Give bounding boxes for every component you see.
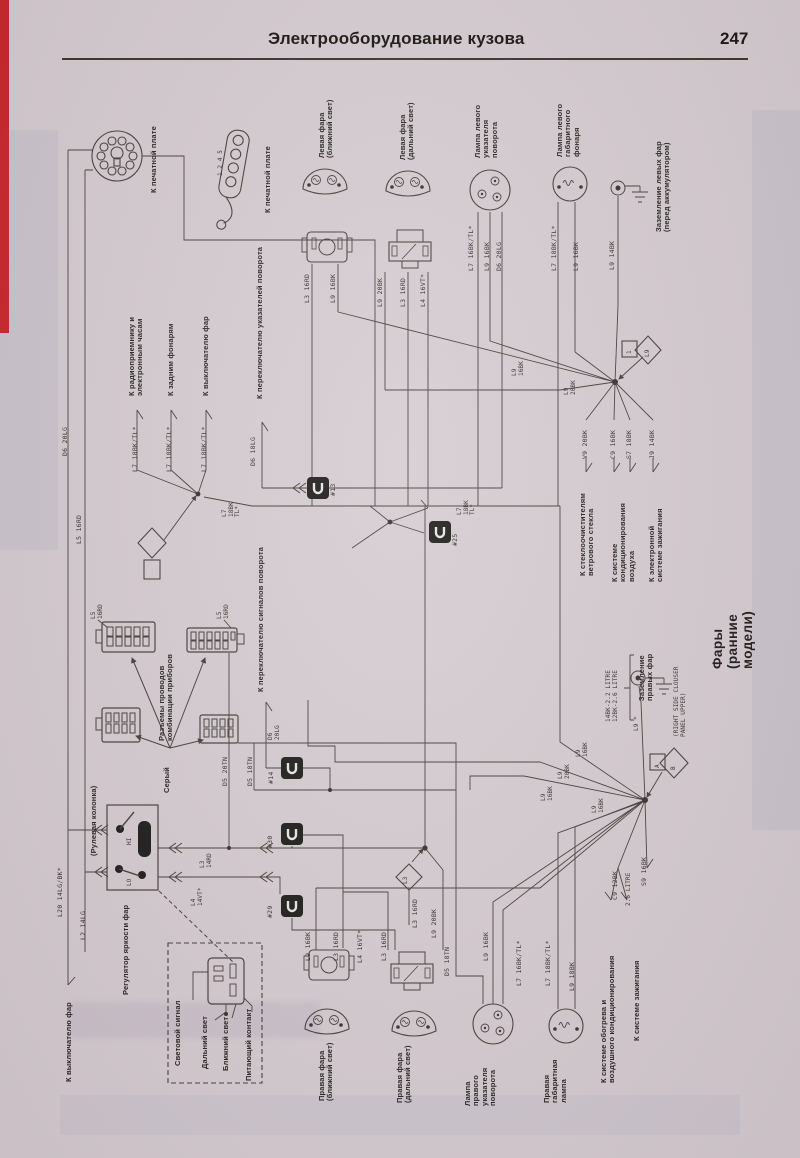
component-label: К системе обогрева и воздушного кондицио… — [600, 956, 617, 1083]
marker-lamp-left-icon — [553, 167, 587, 201]
wire-label: L3 16RD — [333, 932, 340, 961]
component-label: Правая габаритная лампа — [543, 1059, 568, 1103]
junction-star — [612, 379, 618, 385]
wire-label: L4 16VT* — [357, 930, 364, 963]
wire-label: L9 18BK — [569, 962, 576, 991]
headlamp-low-left-icon — [303, 169, 347, 194]
junction-marks — [95, 379, 648, 1016]
wire-label: L5 16RD — [91, 604, 104, 619]
connector-29-icon — [281, 895, 303, 917]
pcb-connector-round-icon — [92, 131, 142, 181]
wire-label: LO — [127, 879, 134, 886]
junction-dot — [227, 846, 231, 850]
wire-label: 2.6 LITRE — [626, 873, 633, 906]
wire-label: L7 18BK/TL* — [545, 940, 552, 986]
diagram-title: Фары (ранние модели) — [710, 579, 755, 669]
wire-label: L9 20BK — [564, 380, 577, 395]
high-beam-connector-left-icon — [389, 230, 431, 268]
connector-id-label: #30 — [267, 836, 274, 849]
wire-label: L9 20BK — [377, 278, 384, 307]
wire-label: L9 16BK — [576, 742, 589, 757]
wire-label: L3 16RD — [412, 899, 419, 928]
wire-label: J9 14BK — [649, 430, 656, 459]
junction-dot — [196, 492, 201, 497]
component-label: Правая фара (ближний свет) — [318, 1043, 335, 1102]
marker-lamp-right-icon — [549, 1009, 583, 1043]
component-label: (Рулевая колонка) — [90, 786, 98, 856]
wire-label: L7 16BK/TL* — [516, 940, 523, 986]
component-label: Правая фара (дальний свет) — [396, 1045, 413, 1103]
wire-label: C9 16BK — [610, 430, 617, 459]
wire-label: L7 18BK/TL* — [166, 426, 173, 472]
splice-id-label: A — [655, 764, 662, 768]
wire-label: L9 16BK — [512, 361, 525, 376]
wire-label: L7 18BK/TL* — [551, 225, 558, 271]
wire-label: L7 18BK TL* — [222, 502, 242, 517]
connector-25-icon — [429, 521, 451, 543]
component-label: Питающий контакт — [245, 1009, 253, 1081]
wire-label: D6 20LG — [496, 242, 503, 271]
component-label: К стеклоочистителям ветрового стекла — [579, 493, 596, 576]
splice-id-label: L9 — [645, 350, 652, 357]
wire-label: D5 18TN — [444, 947, 451, 976]
wire-label: L2 14LG — [80, 911, 87, 940]
component-label: Разъемы проводов комбинации приборов — [158, 654, 175, 741]
splice-id-label: 1 — [627, 350, 634, 354]
junction-dot — [388, 520, 393, 525]
headlamp-low-right-icon — [305, 1009, 349, 1034]
component-label: Ближний свет — [222, 1017, 230, 1071]
wiring-diagram — [0, 0, 800, 1158]
wire-label: V9 20BK — [582, 430, 589, 459]
wire-label: L7 16BK/TL* — [468, 225, 475, 271]
wire-label: L3 16RD — [304, 274, 311, 303]
wire-label: L9 20BK — [431, 909, 438, 938]
component-label: К переключателю указателей поворота — [256, 247, 264, 399]
wire-label: L4 14VT* — [191, 887, 204, 906]
splice-id-label: B — [671, 766, 678, 770]
wire-label: D5 18TN — [247, 757, 254, 786]
wire-label: L9 16BK — [541, 786, 554, 801]
component-label: Регулятор яркости фар — [122, 905, 130, 995]
wire-label: L9 16BK — [330, 274, 337, 303]
wire-label: L7 18BK/TL* — [201, 426, 208, 472]
junction-dot — [224, 1012, 228, 1016]
junction-star — [642, 797, 648, 803]
wire-label: L3 16RD — [381, 932, 388, 961]
component-label: К электронной системе зажигания — [648, 508, 665, 582]
pin-numbers-label: 1 2 4 5 — [218, 150, 225, 176]
component-label: Лампа правого указателя поворота — [464, 1068, 498, 1106]
wire-label: L5 16RD — [76, 515, 83, 544]
manual-page: Электрооборудование кузова 247 — [0, 0, 800, 1158]
component-label: К радиоприемнику и электронным часам — [128, 317, 145, 396]
connector-13-icon — [307, 477, 329, 499]
wire-label: L20 14LG/BK* — [57, 867, 64, 917]
component-label: К переключателю сигналов поворота — [257, 547, 265, 692]
connector-id-label: #29 — [267, 906, 274, 919]
component-label: К печатной плате — [150, 126, 158, 193]
wire-label: L9 * — [634, 716, 641, 731]
wire-label: L9 16BK — [305, 932, 312, 961]
wire-label: L7 18BK TL* — [457, 500, 477, 515]
connector-id-label: #25 — [452, 534, 459, 547]
wire-label: L9 16BK — [592, 798, 605, 813]
wire-label: L5 16RD — [217, 604, 230, 619]
dimmer-switch-icon — [107, 805, 158, 890]
pcb-connector-strip-icon — [212, 129, 251, 232]
component-label: Дальний свет — [201, 1016, 209, 1069]
turn-lamp-left-icon — [470, 170, 510, 210]
wire-label: (RIGHT SIDE CLOUSER PANEL UPPER) — [674, 666, 687, 737]
component-label: К системе кондиционирования воздуха — [611, 503, 636, 582]
component-label: Заземление правых фар — [638, 654, 655, 701]
component-label: К выключателю фар — [202, 316, 210, 396]
wire-label: 14BK-2.2 LITRE 12BK-2.6 LITRE — [606, 670, 619, 722]
wire-label: L9 20BK — [558, 764, 571, 779]
wire-label: L9 14BK — [609, 241, 616, 270]
component-label: Левая фара (ближний свет) — [318, 100, 335, 159]
component-label: К выключателю фар — [65, 1002, 73, 1082]
connector-14-icon — [281, 757, 303, 779]
headlamp-high-right-icon — [392, 1011, 436, 1036]
wire-label: C9 12BK — [612, 871, 619, 900]
wire-label: D6 18LG — [250, 437, 257, 466]
component-label: Лампа левого указателя поворота — [474, 105, 499, 158]
wire-label: D6 20LG — [62, 427, 69, 456]
wire-label: HI — [127, 838, 134, 845]
splice-id-label: L3 — [403, 877, 410, 884]
wire-label: L4 16VT* — [420, 274, 427, 307]
component-label: Заземление левых фар (перед аккумуляторо… — [655, 141, 672, 232]
wire-label: L3 14RD — [200, 853, 213, 868]
junction-dot — [422, 845, 427, 850]
low-beam-connector-left-icon — [302, 232, 352, 262]
ground-left-icon — [611, 181, 648, 202]
component-label: Серый — [163, 767, 171, 793]
component-label: К задним фонарям — [167, 323, 175, 396]
wire-label: L3 16RD — [400, 278, 407, 307]
component-label: Левая фара (дальний свет) — [399, 102, 416, 160]
wire-label: L9 16BK — [484, 242, 491, 271]
wire-label: L9 16BK — [573, 242, 580, 271]
connector-id-label: #14 — [268, 772, 275, 785]
high-beam-connector-right-icon — [391, 952, 433, 990]
wire-label: L7 18BK/TL* — [132, 426, 139, 472]
wire-label: D6 20LG — [268, 725, 281, 740]
wire-label: S9 16BK — [641, 857, 648, 886]
wire-label: S7 18BK — [626, 430, 633, 459]
junction-dot — [328, 788, 332, 792]
connector-id-label: #13 — [330, 484, 337, 497]
component-label: Лампа левого габаритного фонаря — [556, 104, 581, 157]
component-label: К системе зажигания — [633, 960, 641, 1041]
wire-label: L9 16BK — [483, 932, 490, 961]
headlamp-high-left-icon — [386, 171, 430, 196]
wire-label: D5 20TN — [222, 757, 229, 786]
turn-lamp-right-icon — [473, 1004, 513, 1044]
connector-30-icon — [281, 823, 303, 845]
component-label: Световой сигнал — [174, 1000, 182, 1066]
component-label: К печатной плате — [264, 146, 272, 213]
